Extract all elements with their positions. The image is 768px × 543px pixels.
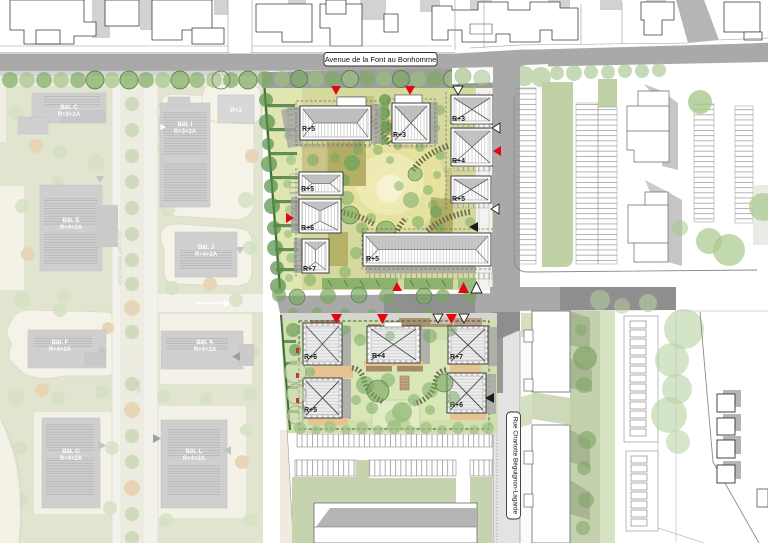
svg-text:R+4: R+4 bbox=[372, 353, 385, 360]
svg-text:R+3: R+3 bbox=[393, 132, 406, 139]
svg-text:R+5: R+5 bbox=[366, 256, 379, 263]
svg-text:R+7: R+7 bbox=[450, 354, 463, 361]
svg-text:R+6: R+6 bbox=[304, 354, 317, 361]
svg-text:R+5: R+5 bbox=[304, 407, 317, 414]
svg-text:R+3: R+3 bbox=[452, 116, 465, 123]
svg-text:R+5: R+5 bbox=[302, 126, 315, 133]
svg-text:R+5: R+5 bbox=[452, 196, 465, 203]
svg-text:R+7: R+7 bbox=[303, 266, 316, 273]
svg-text:R+5: R+5 bbox=[301, 186, 314, 193]
svg-text:R+6: R+6 bbox=[301, 225, 314, 232]
svg-text:Rue Charlotte Béguignon-Lagard: Rue Charlotte Béguignon-Lagarde bbox=[512, 417, 519, 515]
svg-text:Avenue de la Font au Bonhomme: Avenue de la Font au Bonhomme bbox=[325, 55, 437, 64]
svg-text:R+4: R+4 bbox=[452, 158, 465, 165]
